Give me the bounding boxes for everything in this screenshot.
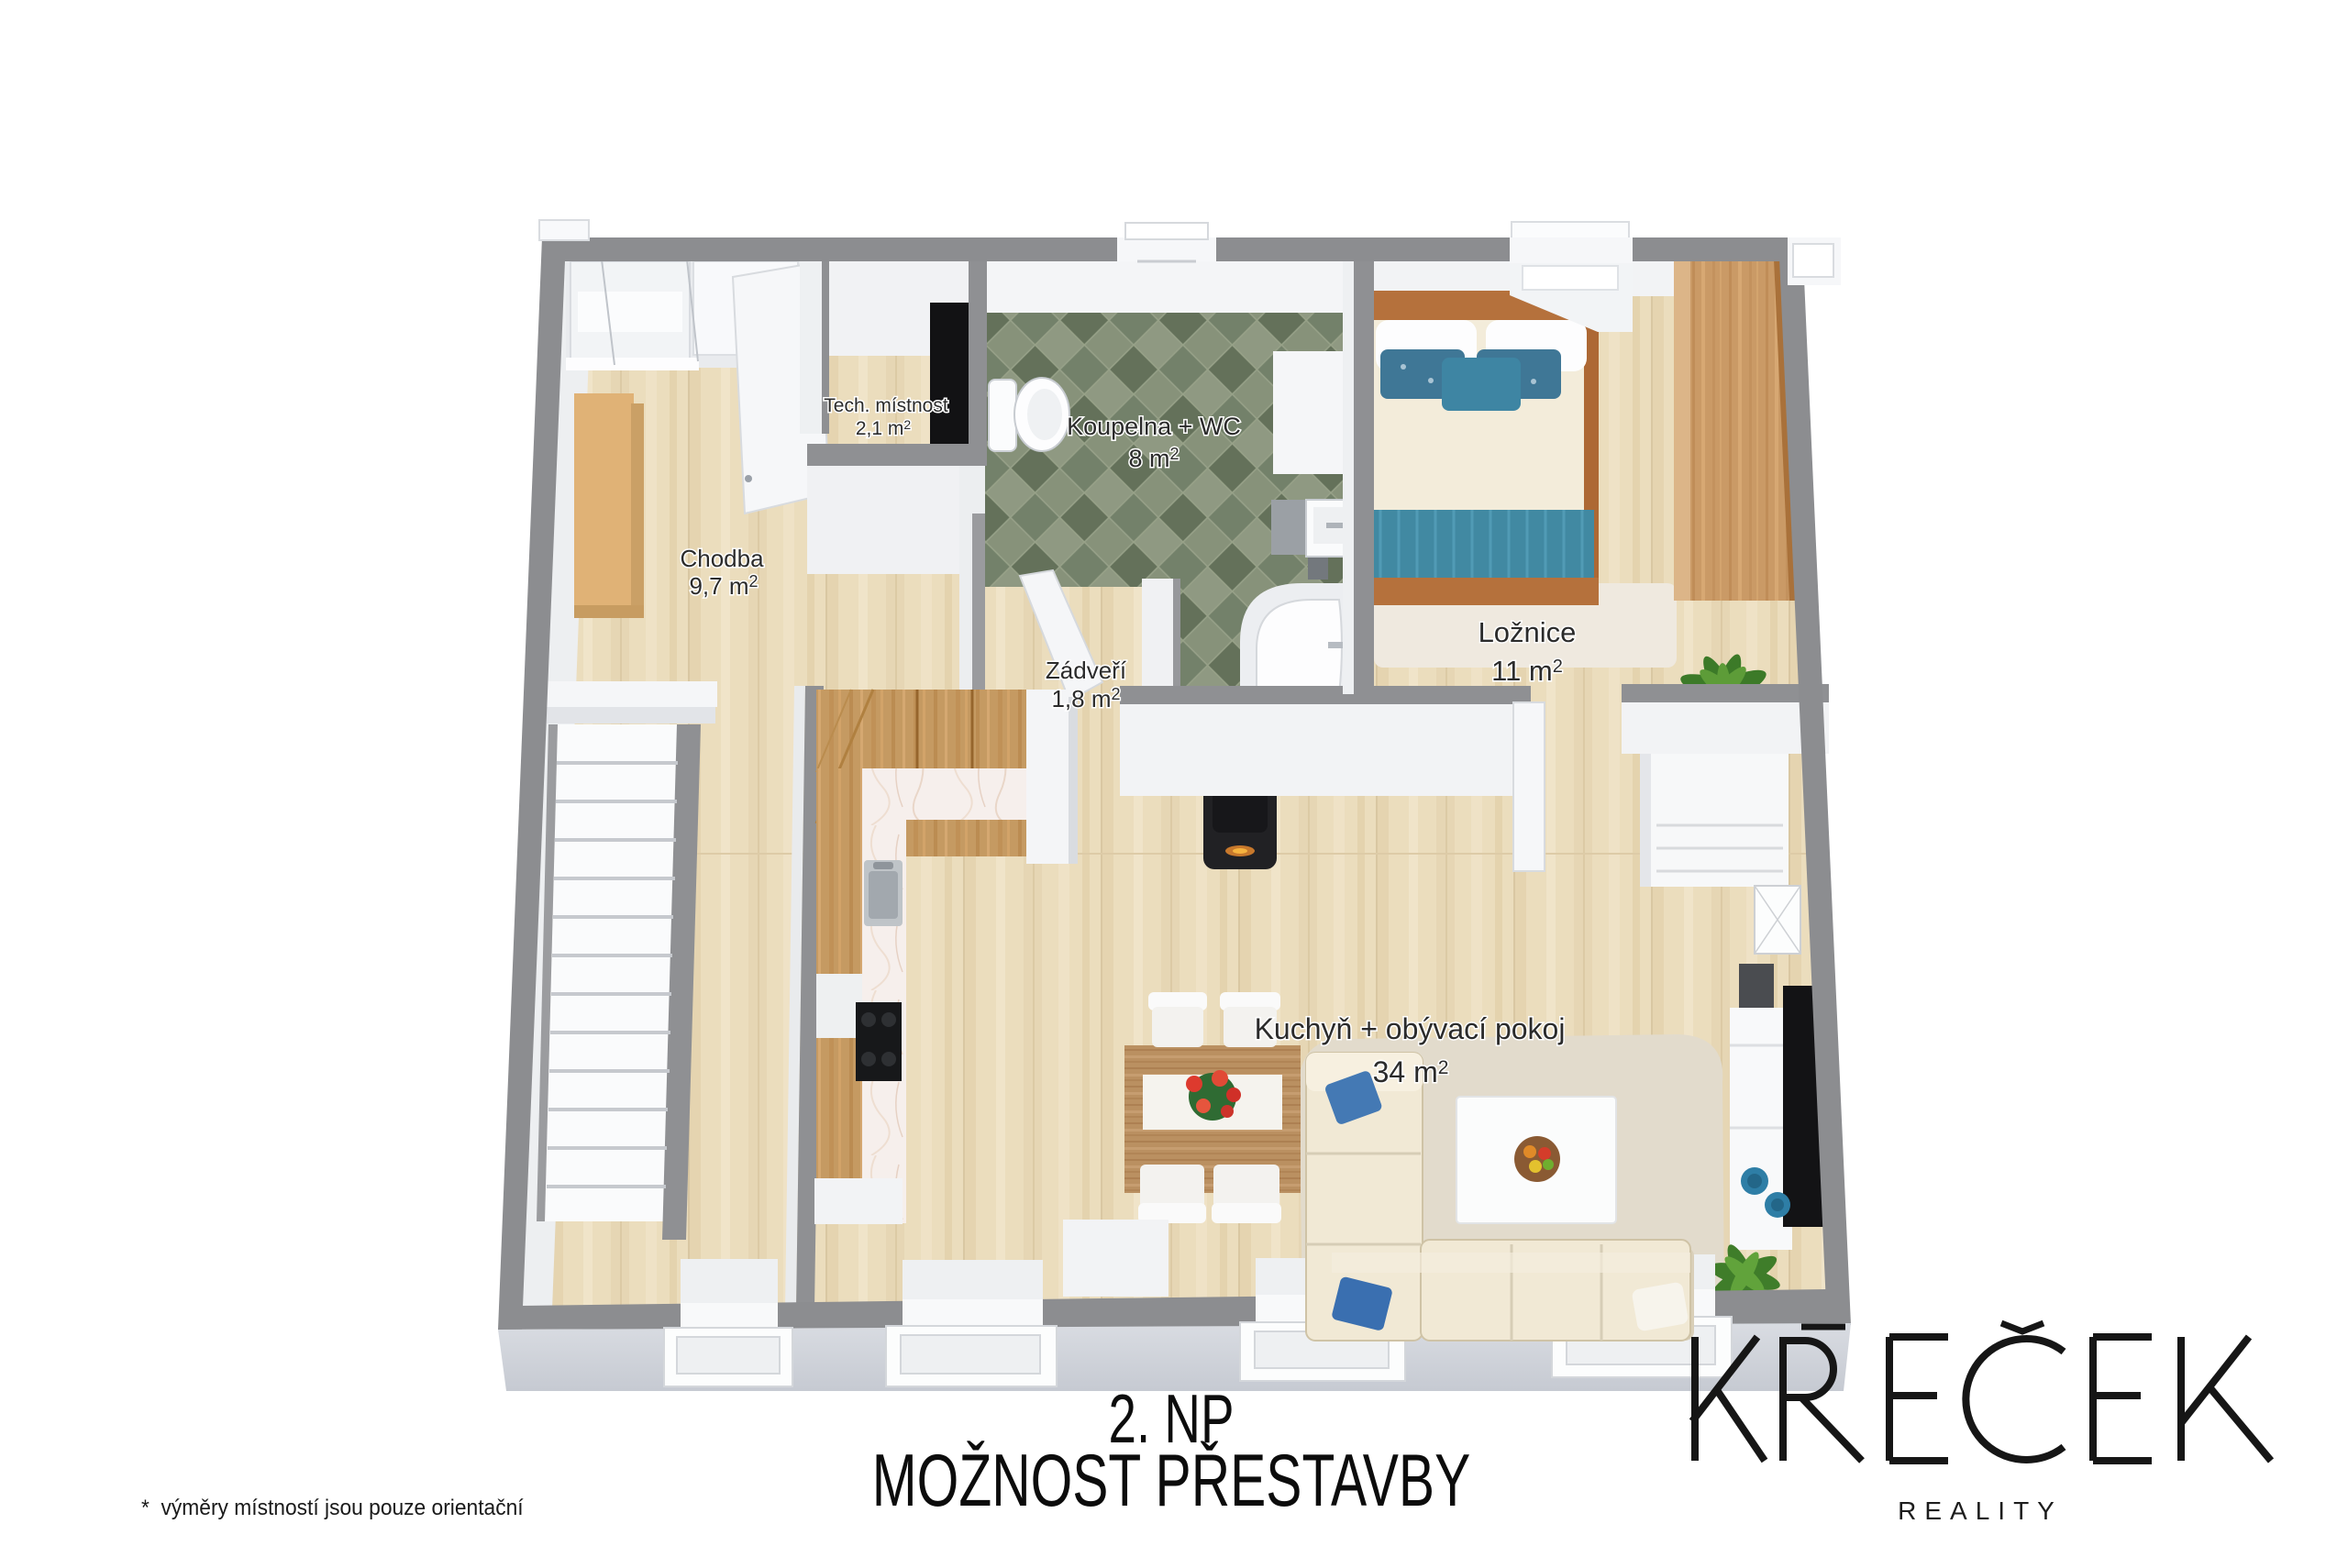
- svg-text:34 m2: 34 m2: [1373, 1055, 1449, 1088]
- svg-text:* výměry místností jsou pouze: * výměry místností jsou pouze orientační: [141, 1495, 524, 1519]
- svg-text:Ložnice: Ložnice: [1479, 616, 1577, 648]
- svg-text:9,7 m2: 9,7 m2: [689, 572, 758, 600]
- svg-text:Chodba: Chodba: [680, 545, 764, 572]
- svg-text:REALITY: REALITY: [1898, 1496, 2063, 1525]
- svg-text:Kuchyň + obývací pokoj: Kuchyň + obývací pokoj: [1255, 1012, 1566, 1045]
- svg-text:2,1 m2: 2,1 m2: [856, 417, 912, 439]
- svg-text:Zádveří: Zádveří: [1046, 657, 1127, 684]
- svg-text:1,8 m2: 1,8 m2: [1051, 685, 1120, 712]
- svg-text:11 m2: 11 m2: [1491, 655, 1563, 687]
- svg-text:MOŽNOST PŘESTAVBY: MOŽNOST PŘESTAVBY: [872, 1439, 1471, 1521]
- svg-text:Koupelna + WC: Koupelna + WC: [1067, 413, 1241, 440]
- svg-text:Tech. místnost: Tech. místnost: [824, 395, 948, 416]
